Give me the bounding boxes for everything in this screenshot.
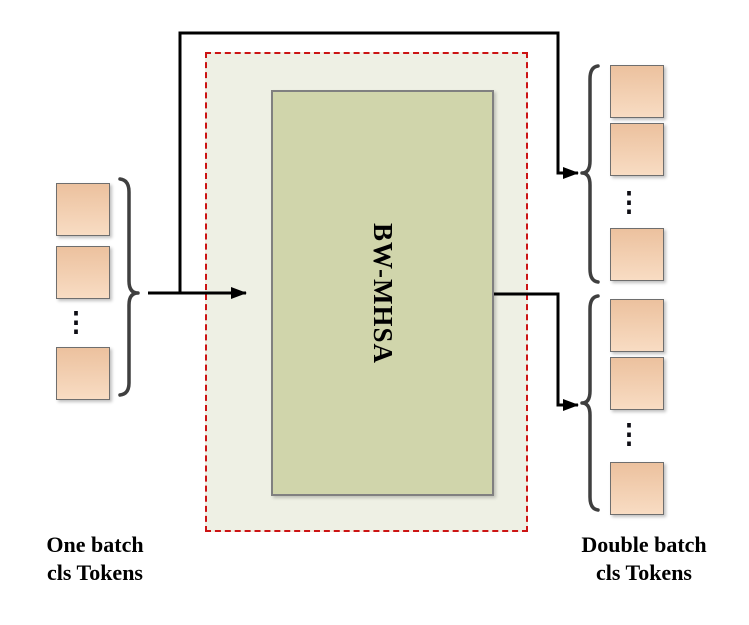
right-top-brace: [582, 66, 598, 282]
diagram-canvas: BW-MHSA ⋮ ⋮ ⋮ One batch cls Tokens Doubl…: [0, 0, 749, 625]
left-token-3: [56, 347, 110, 400]
right-bottom-brace: [582, 296, 598, 510]
right-top-ellipsis: ⋮: [602, 182, 656, 222]
right-top-token-2: [610, 123, 664, 176]
right-group-label: Double batch cls Tokens: [560, 531, 728, 587]
right-bottom-token-3: [610, 462, 664, 515]
left-group-label: One batch cls Tokens: [25, 531, 165, 587]
right-bottom-ellipsis: ⋮: [602, 414, 656, 454]
bw-mhsa-box: BW-MHSA: [271, 90, 494, 496]
left-group-label-line1: One batch: [25, 531, 165, 559]
right-top-token-1: [610, 65, 664, 118]
right-top-token-3: [610, 228, 664, 281]
left-token-1: [56, 183, 110, 236]
right-group-label-line2: cls Tokens: [560, 559, 728, 587]
left-group-label-line2: cls Tokens: [25, 559, 165, 587]
left-ellipsis: ⋮: [49, 302, 103, 342]
left-brace: [120, 179, 138, 395]
right-group-label-line1: Double batch: [560, 531, 728, 559]
right-bottom-token-2: [610, 357, 664, 410]
left-token-2: [56, 246, 110, 299]
bw-mhsa-label: BW-MHSA: [367, 223, 398, 364]
right-bottom-token-1: [610, 299, 664, 352]
